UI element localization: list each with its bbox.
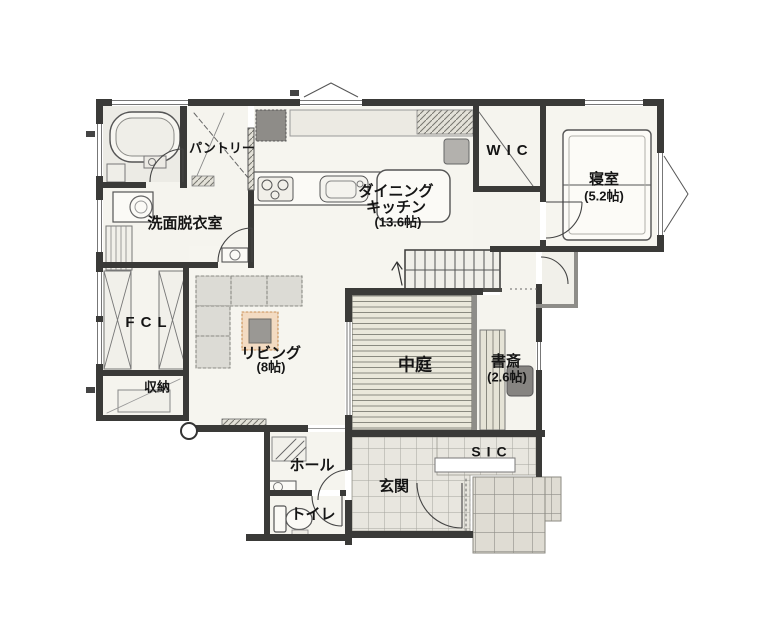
entrance-label: 玄関 (379, 477, 409, 495)
corridor-floor (473, 106, 540, 252)
study-size: (2.6帖) (487, 369, 527, 384)
courtyard-label: 中庭 (398, 354, 432, 374)
coffee-table-icon (249, 319, 271, 343)
porch-tiles (473, 477, 545, 553)
opening-living-hall (308, 426, 345, 431)
bedroom-label: 寝室 (589, 170, 619, 188)
pantry-label: パントリー (189, 140, 255, 155)
stove-icon (258, 177, 293, 201)
window-top-kitchen (300, 83, 362, 106)
study-label: 書斎 (491, 352, 521, 370)
washroom-label: 洗面脱衣室 (147, 214, 222, 232)
dining-kitchen-label-line1: ダイニング (358, 182, 433, 200)
stairs (392, 250, 502, 292)
structural-column (181, 423, 197, 439)
refrigerator-icon (256, 110, 286, 141)
window-left-bath (96, 124, 103, 176)
porch-side-tiles (545, 477, 561, 521)
stool-icon (444, 139, 469, 164)
dining-kitchen-size: (13.6帖) (375, 214, 422, 229)
floor-plan: 洗面脱衣室 パントリー ダイニング キッチン (13.6帖) WIC 寝室 (5… (0, 0, 768, 644)
sic-shelf-icon (435, 458, 515, 472)
dining-kitchen-label-line2: キッチン (366, 199, 426, 216)
cupboard-hatch (417, 110, 473, 134)
bedroom-size: (5.2帖) (584, 188, 624, 203)
window-left-washroom (96, 200, 103, 252)
fcl-label: FCL (125, 314, 172, 331)
window-top-bedroom (585, 99, 643, 106)
wic-label: WIC (486, 142, 533, 159)
window-study-east (536, 342, 542, 370)
window-bedroom-east (657, 153, 688, 235)
pantry-shelf (192, 176, 214, 186)
storage-label: 収納 (144, 379, 170, 394)
hall-label: ホール (289, 457, 334, 474)
bath-counter (107, 164, 125, 182)
living-size: (8帖) (257, 359, 286, 374)
window-top-bath (112, 99, 188, 106)
hand-basin-icon (222, 248, 248, 262)
window-left-fcl1 (96, 272, 103, 316)
living-glass-wall (345, 322, 352, 415)
sic-label: SIC (471, 444, 512, 460)
window-left-fcl2 (96, 322, 103, 364)
toilet-label: トイレ (290, 506, 335, 523)
floor-plan-page: 洗面脱衣室 パントリー ダイニング キッチン (13.6帖) WIC 寝室 (5… (0, 0, 768, 644)
tv-board-icon (222, 419, 266, 426)
nook-floor (542, 252, 574, 304)
bathtub-icon (110, 112, 180, 168)
